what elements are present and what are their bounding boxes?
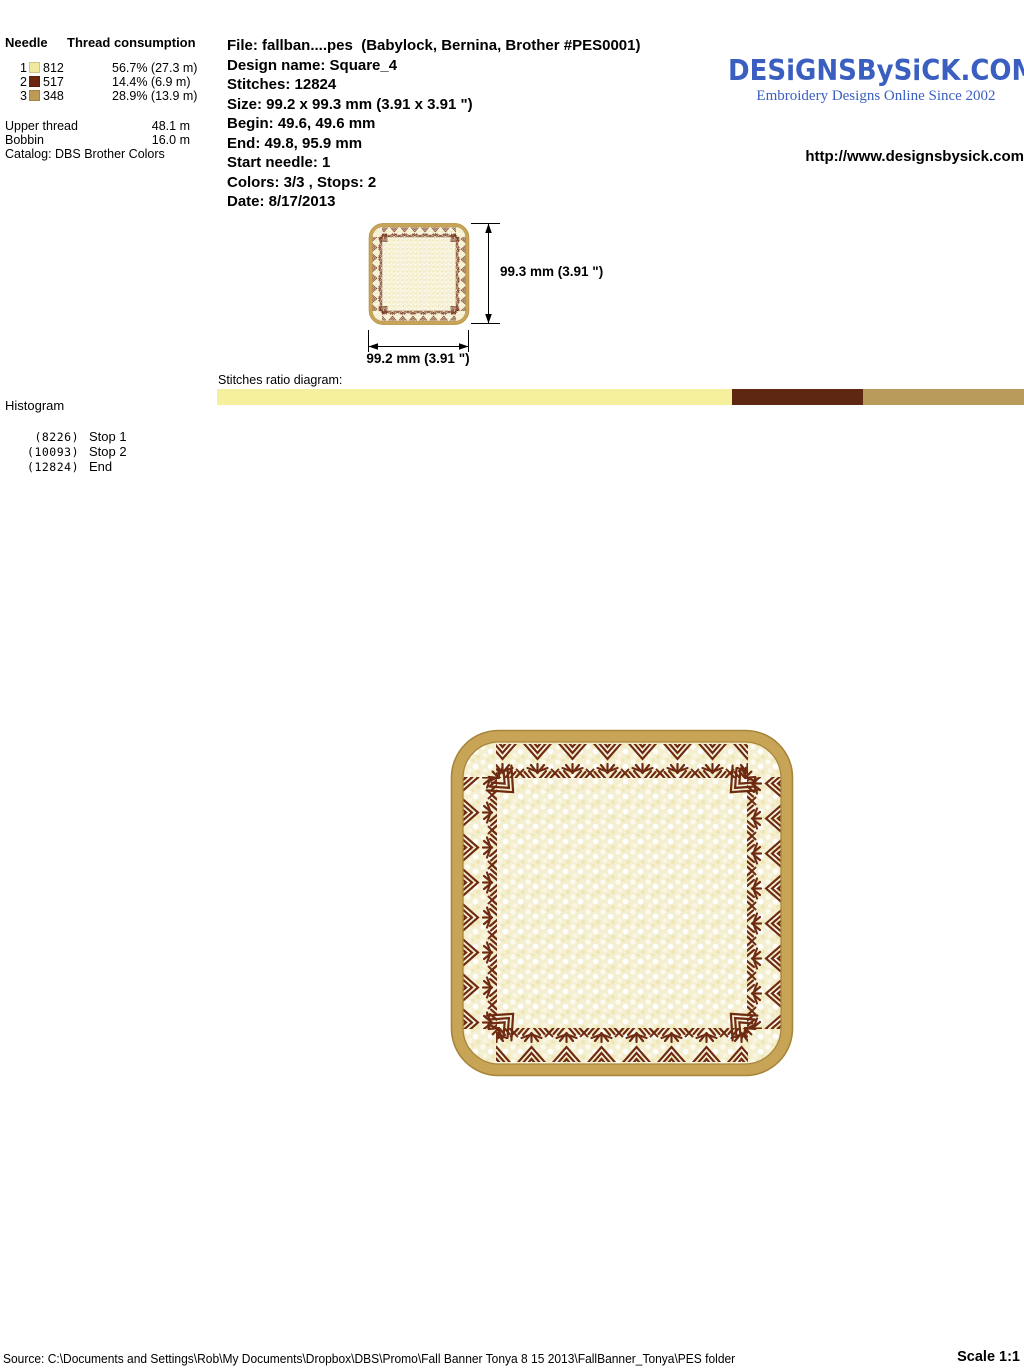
brand-tagline: Embroidery Designs Online Since 2002 (728, 88, 1024, 105)
bobbin-row: Bobbin 16.0 m (5, 133, 190, 147)
histogram-stop: (12824)End (25, 459, 127, 474)
consumption-column-header: Thread consumption (67, 35, 196, 50)
scale-label: Scale 1:1 (957, 1349, 1020, 1365)
source-path: Source: C:\Documents and Settings\Rob\My… (3, 1352, 735, 1366)
needle-column-header: Needle (5, 35, 67, 50)
thread-code: 812 (40, 61, 112, 75)
needle-table-rows: 181256.7% (27.3 m)251714.4% (6.9 m)33482… (5, 61, 197, 103)
needle-number: 2 (5, 75, 29, 89)
thread-color-swatch (29, 90, 40, 101)
width-dimension-label: 99.2 mm (3.91 ") (362, 351, 474, 366)
bobbin-label: Bobbin (5, 133, 44, 147)
stitch-ratio-label: Stitches ratio diagram: (218, 373, 342, 387)
file-info-line: End: 49.8, 95.9 mm (227, 134, 640, 154)
designsbysick-logo: DESiGNSBySiCK.COM (728, 55, 1024, 87)
thread-consumption: 56.7% (27.3 m) (112, 61, 197, 75)
file-info-line: File: fallban....pes (Babylock, Bernina,… (227, 36, 640, 56)
file-info: File: fallban....pes (Babylock, Bernina,… (227, 36, 640, 212)
stop-count: (8226) (25, 430, 79, 445)
needle-number: 1 (5, 61, 29, 75)
thread-color-swatch (29, 62, 40, 73)
needle-table-header: NeedleThread consumption (5, 35, 196, 50)
upper-thread-row: Upper thread 48.1 m (5, 119, 190, 133)
file-info-line: Stitches: 12824 (227, 75, 640, 95)
thread-color-swatch (29, 76, 40, 87)
page: { "needle_table": { "header_needle": "Ne… (0, 0, 1024, 1370)
website-url: http://www.designsbysick.com (805, 148, 1024, 165)
histogram-stop: (8226)Stop 1 (25, 429, 127, 444)
ratio-segment (863, 389, 1024, 405)
needle-number: 3 (5, 89, 29, 103)
stitch-ratio-bar (217, 389, 1024, 405)
upper-thread-value: 48.1 m (152, 119, 190, 133)
embroidery-design-preview (450, 729, 794, 1077)
thread-code: 348 (40, 89, 112, 103)
file-info-line: Date: 8/17/2013 (227, 192, 640, 212)
file-info-line: Colors: 3/3 , Stops: 2 (227, 173, 640, 193)
stop-label: Stop 1 (89, 429, 127, 444)
thread-consumption: 14.4% (6.9 m) (112, 75, 191, 89)
ratio-segment (217, 389, 732, 405)
needle-row: 181256.7% (27.3 m) (5, 61, 197, 75)
thread-code: 517 (40, 75, 112, 89)
file-info-line: Start needle: 1 (227, 153, 640, 173)
upper-thread-label: Upper thread (5, 119, 78, 133)
needle-row: 251714.4% (6.9 m) (5, 75, 197, 89)
stop-count: (10093) (25, 445, 79, 460)
needle-row: 334828.9% (13.9 m) (5, 89, 197, 103)
file-info-line: Begin: 49.6, 49.6 mm (227, 114, 640, 134)
catalog-label: Catalog: DBS Brother Colors (5, 147, 190, 161)
design-thumbnail (368, 223, 470, 325)
height-dimension-label: 99.3 mm (3.91 ") (500, 264, 603, 279)
branding-block: DESiGNSBySiCK.COM Embroidery Designs Onl… (728, 55, 1024, 105)
histogram-label: Histogram (5, 398, 64, 413)
file-info-line: Design name: Square_4 (227, 56, 640, 76)
histogram-stops: (8226)Stop 1(10093)Stop 2(12824)End (25, 429, 127, 474)
ratio-segment (732, 389, 863, 405)
stop-label: End (89, 459, 112, 474)
thread-consumption: 28.9% (13.9 m) (112, 89, 197, 103)
stop-label: Stop 2 (89, 444, 127, 459)
thread-totals: Upper thread 48.1 m Bobbin 16.0 m Catalo… (5, 119, 190, 161)
histogram-stop: (10093)Stop 2 (25, 444, 127, 459)
bobbin-value: 16.0 m (152, 133, 190, 147)
file-info-line: Size: 99.2 x 99.3 mm (3.91 x 3.91 ") (227, 95, 640, 115)
stop-count: (12824) (25, 460, 79, 475)
